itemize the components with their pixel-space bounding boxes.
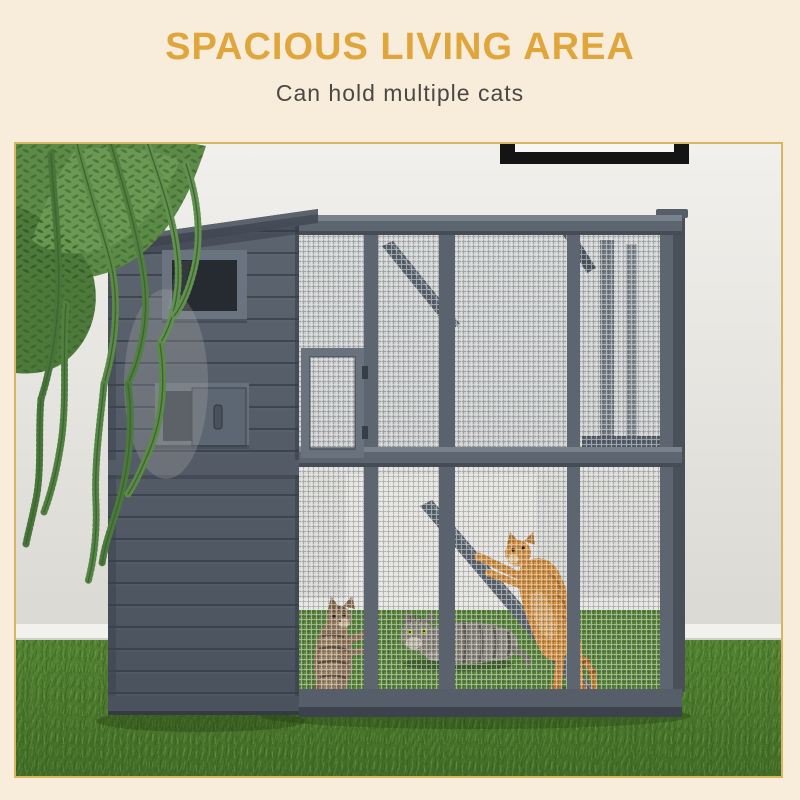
catio-scene — [16, 144, 781, 776]
page-subtitle: Can hold multiple cats — [0, 80, 800, 107]
picture-frame — [500, 144, 689, 164]
page: { "header": { "title": "SPACIOUS LIVING … — [0, 0, 800, 800]
product-photo — [14, 142, 783, 778]
page-title: SPACIOUS LIVING AREA — [0, 26, 800, 69]
hinge — [362, 366, 368, 379]
door-handle — [214, 405, 222, 429]
hinge — [362, 426, 368, 439]
header: SPACIOUS LIVING AREA Can hold multiple c… — [0, 26, 800, 107]
mesh-run — [279, 209, 688, 717]
